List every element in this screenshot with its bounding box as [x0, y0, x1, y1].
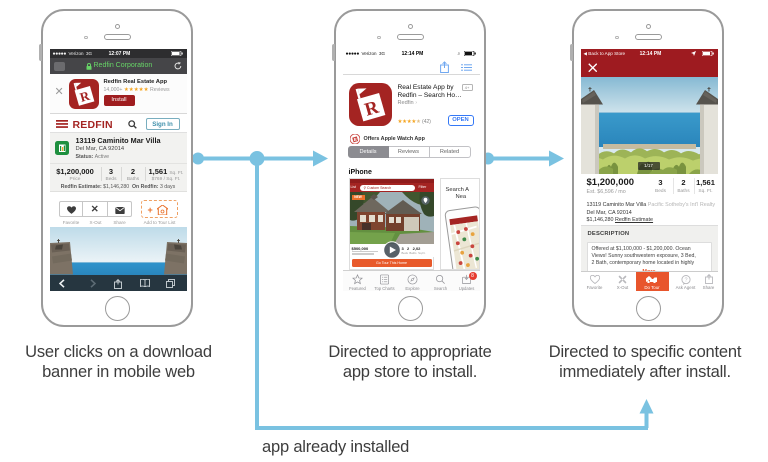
svg-text:?: ?: [684, 277, 687, 283]
